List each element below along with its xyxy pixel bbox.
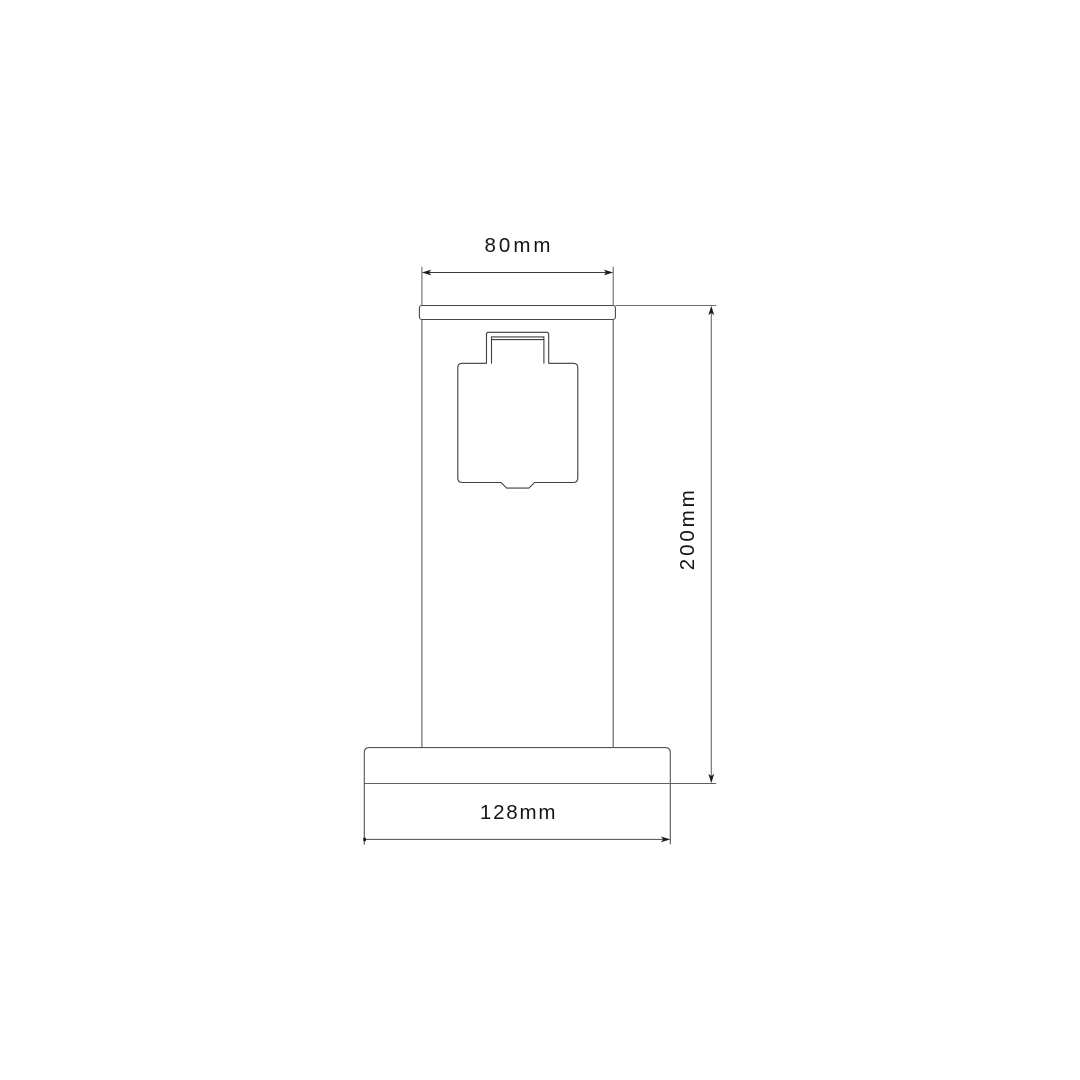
svg-text:200mm: 200mm [676, 487, 699, 570]
svg-text:128mm: 128mm [480, 801, 557, 824]
svg-text:80mm: 80mm [485, 234, 554, 257]
